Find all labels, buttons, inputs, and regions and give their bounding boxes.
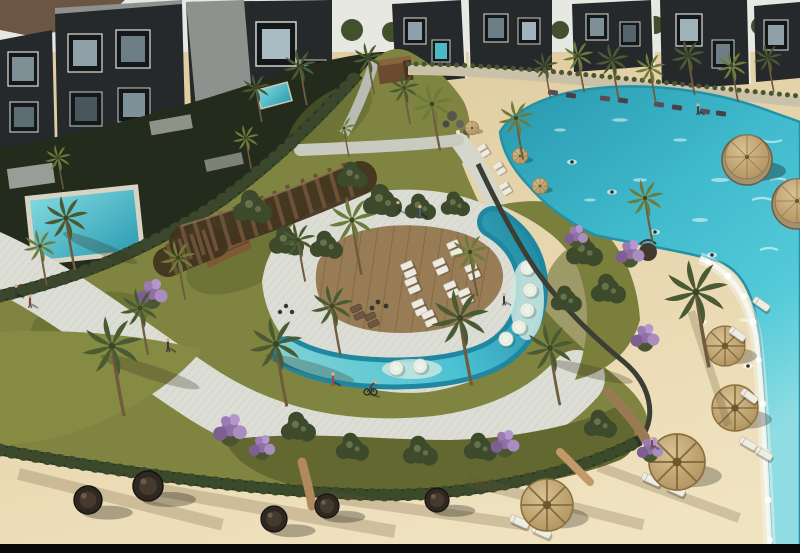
- resort-aerial-scene: [0, 0, 800, 553]
- rendering-canvas: [0, 0, 800, 553]
- bottom-letterbox-bar: [0, 544, 800, 553]
